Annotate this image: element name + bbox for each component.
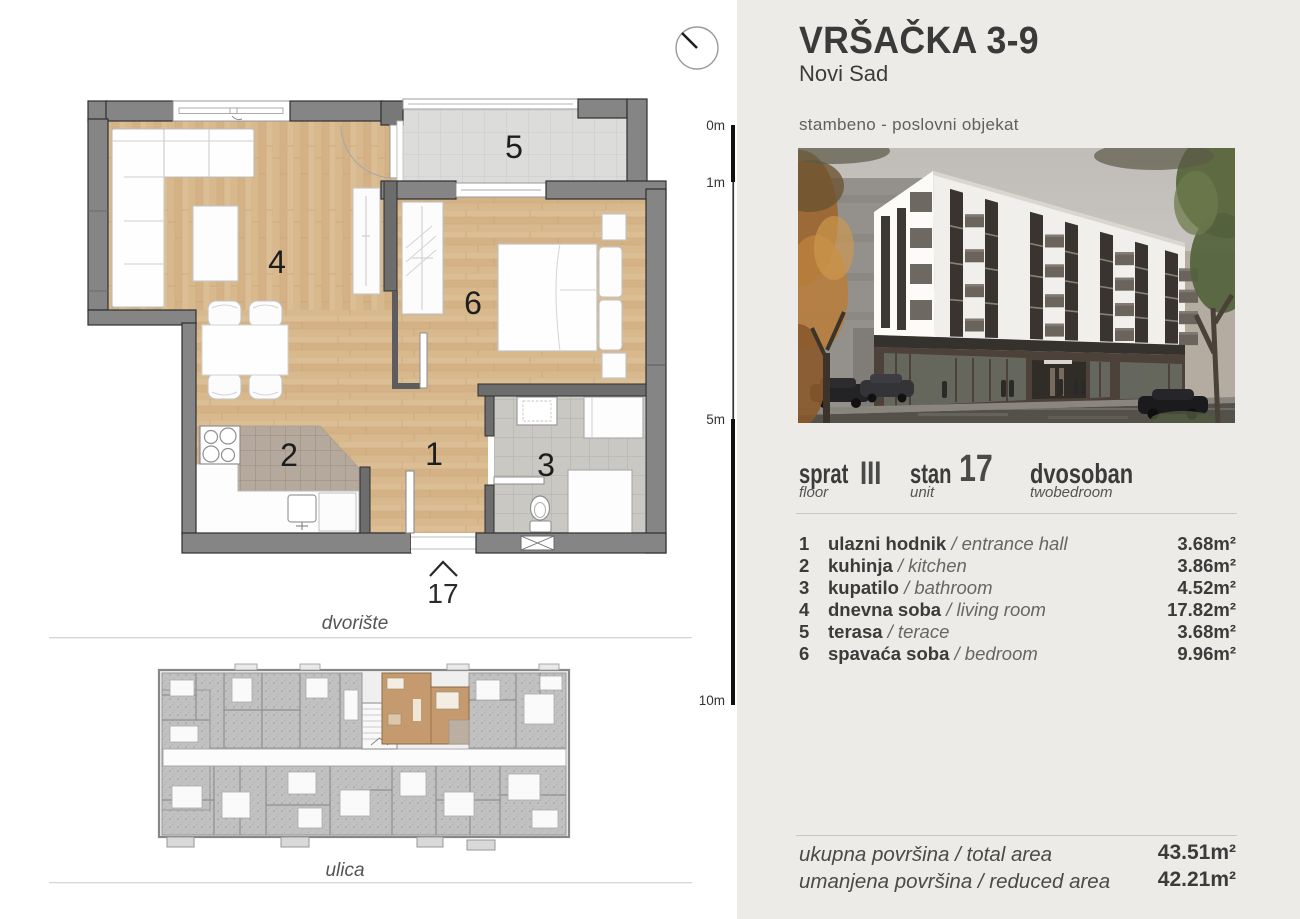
svg-text:6: 6 <box>464 285 482 321</box>
svg-text:1: 1 <box>425 436 443 472</box>
svg-text:ulica: ulica <box>325 860 364 881</box>
svg-text:5: 5 <box>505 129 523 165</box>
svg-text:0m: 0m <box>706 118 725 133</box>
svg-text:17: 17 <box>427 578 458 609</box>
svg-text:1m: 1m <box>706 175 725 190</box>
svg-text:4: 4 <box>268 244 286 280</box>
svg-text:2: 2 <box>280 437 298 473</box>
svg-text:5m: 5m <box>706 412 725 427</box>
svg-text:10m: 10m <box>699 693 725 708</box>
svg-text:3: 3 <box>537 447 555 483</box>
svg-text:dvorište: dvorište <box>322 613 389 634</box>
